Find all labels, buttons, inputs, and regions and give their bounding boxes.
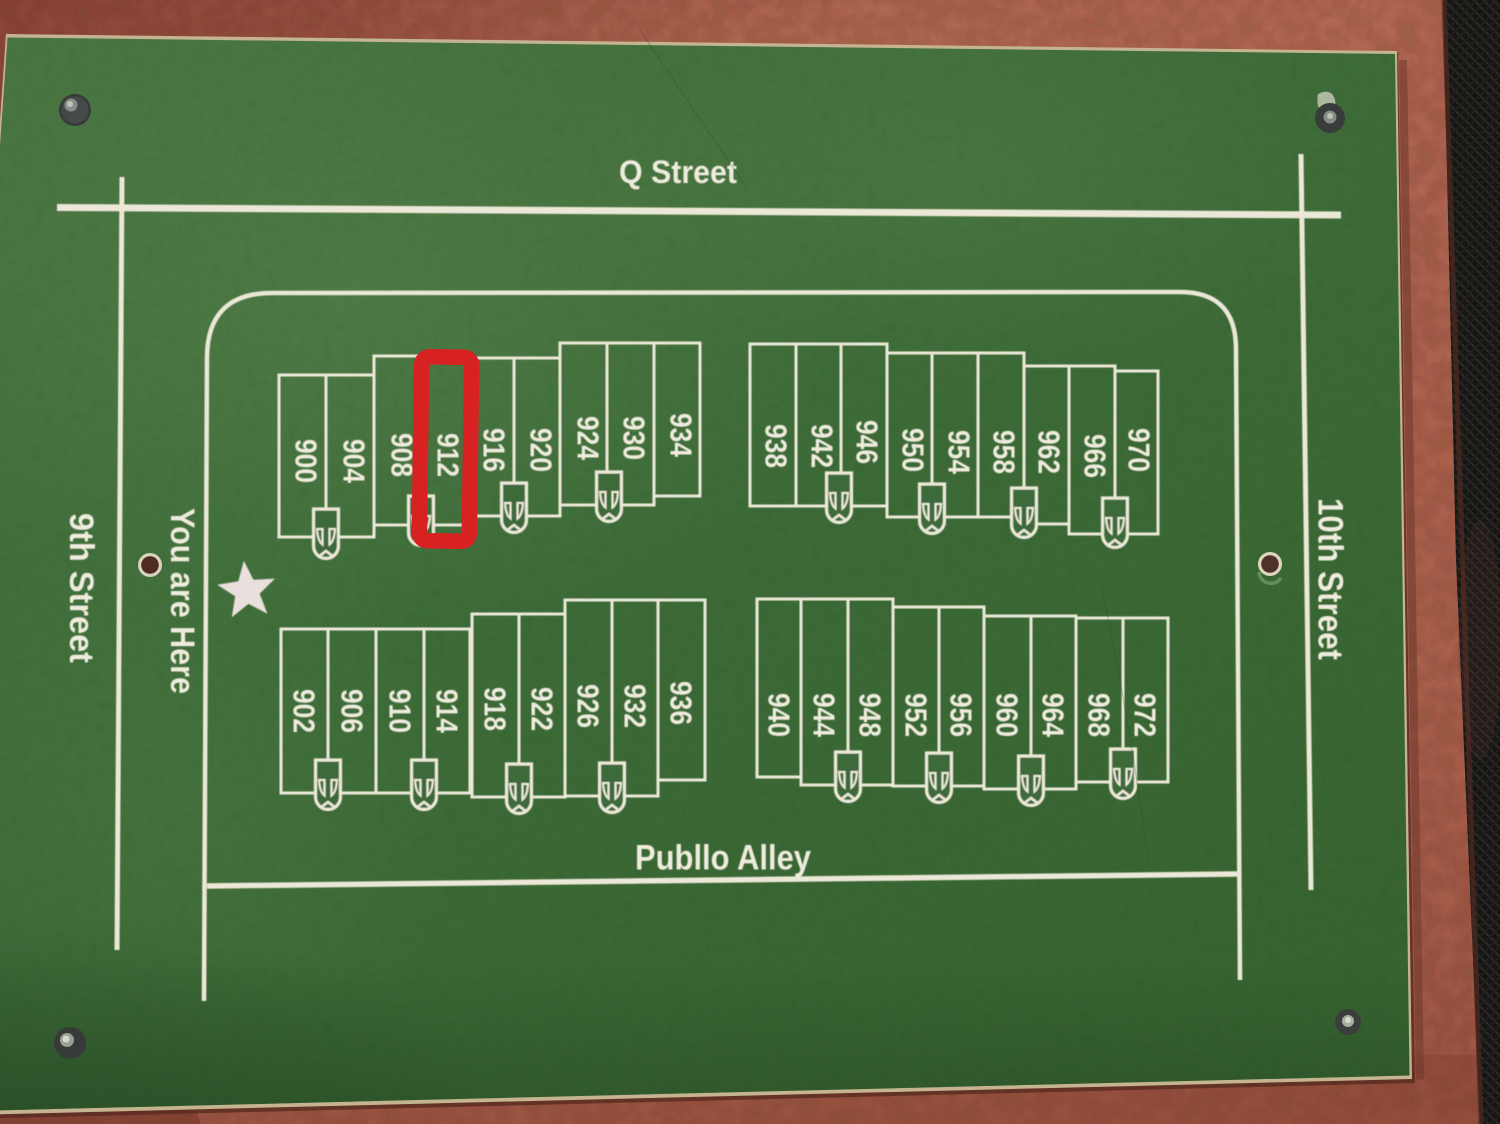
svg-text:910: 910 — [383, 689, 418, 733]
svg-text:970: 970 — [1122, 428, 1157, 472]
svg-text:920: 920 — [524, 428, 559, 472]
svg-text:942: 942 — [805, 424, 840, 468]
svg-text:952: 952 — [899, 693, 934, 737]
svg-text:You are Here: You are Here — [163, 508, 201, 694]
svg-text:958: 958 — [987, 430, 1022, 474]
svg-text:950: 950 — [896, 428, 931, 472]
svg-text:936: 936 — [664, 681, 699, 725]
svg-text:914: 914 — [430, 689, 465, 734]
svg-text:934: 934 — [664, 413, 699, 458]
svg-text:916: 916 — [477, 428, 512, 472]
svg-text:922: 922 — [525, 687, 560, 731]
svg-text:926: 926 — [571, 684, 606, 728]
svg-text:Publlo Alley: Publlo Alley — [635, 839, 811, 878]
svg-text:924: 924 — [571, 416, 606, 461]
svg-text:904: 904 — [337, 439, 372, 484]
svg-text:918: 918 — [478, 687, 513, 731]
svg-text:932: 932 — [618, 684, 653, 728]
svg-text:948: 948 — [853, 693, 888, 737]
svg-text:Q Street: Q Street — [619, 154, 737, 190]
svg-text:964: 964 — [1036, 693, 1071, 738]
svg-text:966: 966 — [1078, 434, 1113, 478]
svg-text:972: 972 — [1128, 693, 1163, 737]
svg-text:900: 900 — [289, 439, 324, 483]
svg-text:938: 938 — [759, 424, 794, 468]
svg-text:10th Street: 10th Street — [1311, 498, 1350, 660]
svg-text:962: 962 — [1032, 430, 1067, 474]
svg-text:960: 960 — [990, 693, 1025, 737]
svg-text:906: 906 — [335, 689, 370, 733]
svg-text:954: 954 — [942, 430, 977, 475]
svg-text:930: 930 — [617, 416, 652, 460]
svg-text:946: 946 — [850, 420, 885, 464]
svg-text:9th Street: 9th Street — [62, 513, 100, 663]
svg-text:912: 912 — [431, 433, 466, 477]
svg-text:956: 956 — [944, 693, 979, 737]
svg-text:968: 968 — [1082, 693, 1117, 737]
svg-text:940: 940 — [762, 693, 797, 737]
svg-text:902: 902 — [287, 689, 322, 733]
svg-text:944: 944 — [807, 693, 842, 738]
